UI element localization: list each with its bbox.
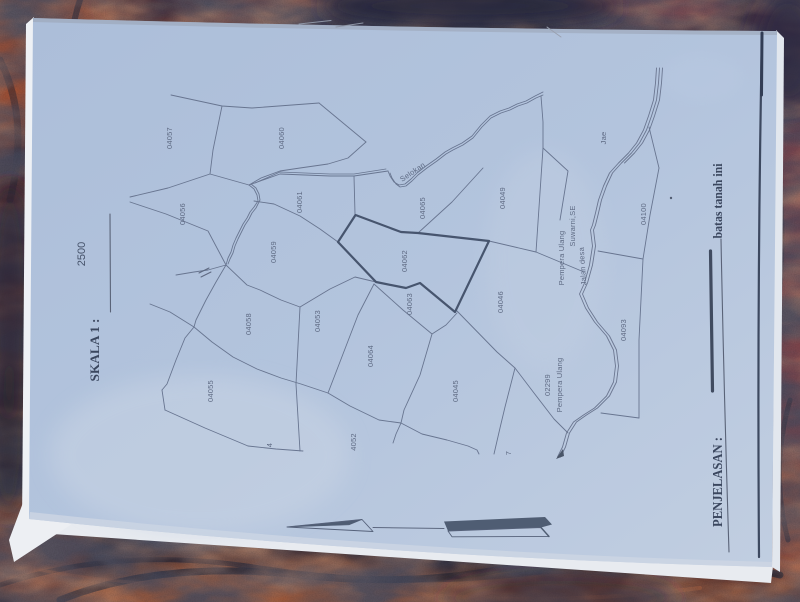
svg-text:Pempera Ulang: Pempera Ulang: [557, 231, 566, 286]
svg-text:04063: 04063: [405, 293, 414, 315]
svg-text:04060: 04060: [277, 127, 286, 149]
svg-text:04065: 04065: [418, 197, 427, 219]
svg-text:04064: 04064: [366, 345, 375, 367]
svg-text:4052: 4052: [349, 433, 358, 451]
svg-text:2500: 2500: [76, 242, 88, 266]
svg-text:Pempera Ulang: Pempera Ulang: [555, 358, 564, 413]
svg-text:batas tanah ini: batas tanah ini: [711, 163, 725, 238]
svg-text:04055: 04055: [206, 380, 215, 402]
svg-text:04049: 04049: [498, 187, 507, 209]
svg-text:SKALA 1 :: SKALA 1 :: [87, 319, 102, 382]
svg-text:04093: 04093: [619, 319, 628, 341]
svg-text:04056: 04056: [178, 203, 187, 225]
svg-text:04059: 04059: [269, 241, 278, 263]
svg-text:7: 7: [504, 451, 513, 455]
svg-text:Suwarni,SE: Suwarni,SE: [568, 205, 577, 246]
svg-text:PENJELASAN :: PENJELASAN :: [711, 437, 726, 527]
svg-text:4: 4: [265, 443, 274, 447]
svg-text:04057: 04057: [165, 127, 174, 149]
svg-text:04053: 04053: [313, 310, 322, 332]
svg-text:Jae: Jae: [599, 132, 608, 145]
svg-text:04061: 04061: [295, 191, 304, 213]
svg-text:04045: 04045: [451, 380, 460, 402]
svg-text:02299: 02299: [543, 374, 552, 396]
svg-text:04062: 04062: [400, 250, 409, 272]
svg-text:04046: 04046: [496, 291, 505, 313]
svg-text:04100: 04100: [639, 203, 648, 225]
svg-text:04058: 04058: [244, 313, 253, 335]
